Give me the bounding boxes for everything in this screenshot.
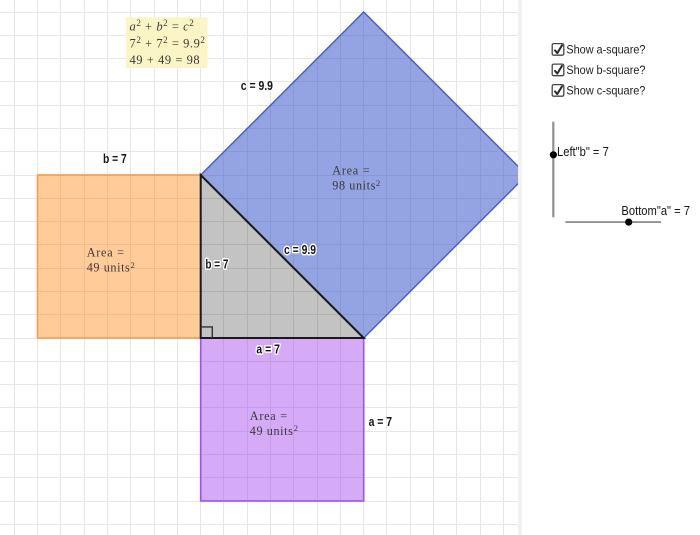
svg-text:Area =: Area = bbox=[87, 246, 124, 260]
svg-text:49 units: 49 units bbox=[250, 424, 293, 438]
svg-text:c = 9.9: c = 9.9 bbox=[241, 79, 273, 93]
svg-text:a = 7: a = 7 bbox=[256, 342, 280, 356]
svg-text:2: 2 bbox=[130, 260, 134, 270]
svg-text:49 units: 49 units bbox=[87, 261, 130, 275]
svg-text:b = 7: b = 7 bbox=[205, 257, 228, 271]
svg-text:Show b-square?: Show b-square? bbox=[566, 63, 645, 77]
svg-text:2: 2 bbox=[376, 178, 380, 188]
svg-text:2: 2 bbox=[294, 423, 298, 433]
svg-text:72 + 72 = 9.92: 72 + 72 = 9.92 bbox=[130, 35, 206, 50]
svg-text:a = 7: a = 7 bbox=[369, 415, 392, 429]
svg-text:98 units: 98 units bbox=[332, 179, 375, 193]
svg-text:Area =: Area = bbox=[250, 409, 287, 423]
svg-text:Bottom"a" = 7: Bottom"a" = 7 bbox=[621, 204, 690, 218]
svg-text:Show c-square?: Show c-square? bbox=[566, 84, 645, 98]
svg-text:Left"b" = 7: Left"b" = 7 bbox=[557, 145, 609, 159]
svg-text:Area =: Area = bbox=[332, 163, 369, 177]
svg-text:b = 7: b = 7 bbox=[103, 152, 127, 166]
svg-text:49 + 49 = 98: 49 + 49 = 98 bbox=[130, 53, 201, 67]
svg-text:c = 9.9: c = 9.9 bbox=[284, 243, 316, 257]
svg-text:Show a-square?: Show a-square? bbox=[566, 43, 645, 57]
